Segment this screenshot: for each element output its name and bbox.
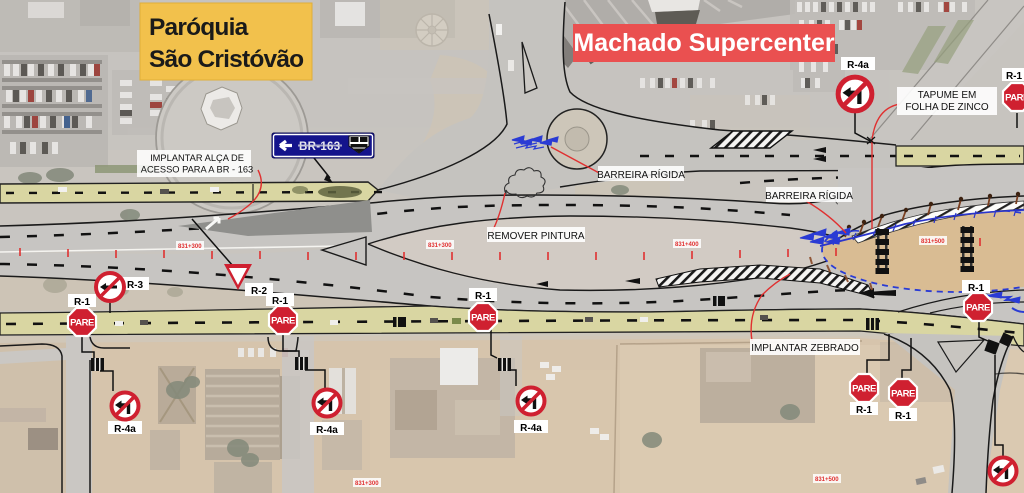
svg-text:IMPLANTAR ZEBRADO: IMPLANTAR ZEBRADO bbox=[751, 343, 859, 354]
svg-text:R-4a: R-4a bbox=[520, 423, 542, 434]
svg-text:Machado Supercenter: Machado Supercenter bbox=[573, 29, 834, 57]
svg-text:São Cristóvão: São Cristóvão bbox=[149, 46, 304, 73]
svg-text:831+400: 831+400 bbox=[675, 242, 699, 248]
svg-text:R-1: R-1 bbox=[475, 291, 492, 302]
svg-text:R-3: R-3 bbox=[127, 280, 144, 291]
svg-text:TAPUME EM: TAPUME EM bbox=[918, 90, 977, 101]
svg-text:Paróquia: Paróquia bbox=[149, 14, 249, 41]
svg-text:R-1: R-1 bbox=[1006, 71, 1023, 82]
svg-text:831+500: 831+500 bbox=[921, 239, 945, 245]
svg-text:BARREIRA RÍGIDA: BARREIRA RÍGIDA bbox=[765, 189, 853, 202]
svg-text:R-1: R-1 bbox=[74, 297, 91, 308]
svg-text:R-2: R-2 bbox=[251, 286, 268, 297]
svg-text:R-4a: R-4a bbox=[114, 424, 136, 435]
svg-text:IMPLANTAR ALÇA DE: IMPLANTAR ALÇA DE bbox=[150, 153, 244, 163]
svg-text:R-1: R-1 bbox=[856, 405, 873, 416]
svg-text:831+300: 831+300 bbox=[428, 243, 452, 249]
svg-text:BARREIRA RÍGIDA: BARREIRA RÍGIDA bbox=[597, 168, 685, 181]
svg-text:R-4a: R-4a bbox=[316, 425, 338, 436]
svg-text:BR-163: BR-163 bbox=[299, 141, 340, 153]
svg-text:831+300: 831+300 bbox=[178, 244, 202, 250]
svg-text:831+300: 831+300 bbox=[355, 481, 379, 487]
svg-text:R-1: R-1 bbox=[895, 411, 912, 422]
svg-text:831+500: 831+500 bbox=[815, 477, 839, 483]
svg-text:ACESSO PARA A BR - 163: ACESSO PARA A BR - 163 bbox=[141, 165, 253, 175]
svg-text:R-4a: R-4a bbox=[847, 60, 869, 71]
svg-text:FOLHA DE ZINCO: FOLHA DE ZINCO bbox=[905, 102, 989, 113]
svg-text:REMOVER PINTURA: REMOVER PINTURA bbox=[487, 231, 585, 242]
